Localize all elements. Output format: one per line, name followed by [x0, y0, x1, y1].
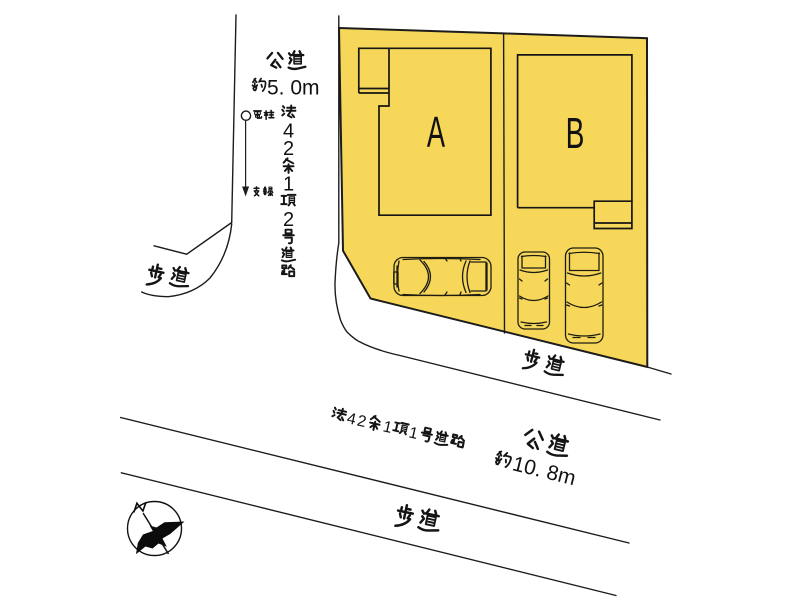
svg-text:A: A: [427, 107, 446, 156]
svg-text:5. 0m: 5. 0m: [267, 77, 320, 100]
svg-text:B: B: [566, 109, 585, 158]
svg-text:1: 1: [283, 174, 294, 196]
svg-text:2: 2: [283, 209, 294, 231]
svg-text:2: 2: [283, 138, 294, 160]
